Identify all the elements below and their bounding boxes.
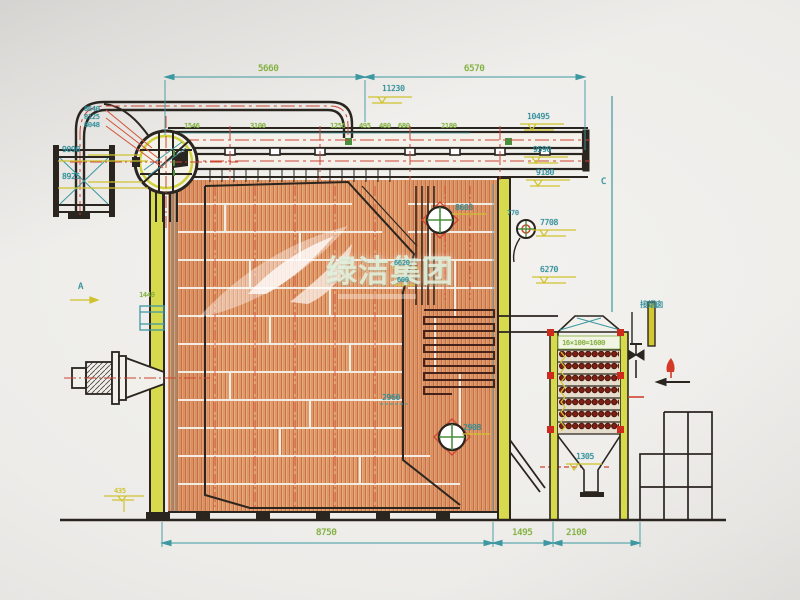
elevation-600: 600 [397, 276, 409, 284]
dim-770: 770 [507, 209, 519, 217]
dim-8603: 8603 [455, 203, 473, 212]
top-headers [162, 128, 589, 182]
elevation-8925: 8925 [62, 172, 80, 181]
left-support-arms [54, 146, 148, 216]
section-marker-c: C [601, 177, 606, 187]
stair-platform [640, 412, 712, 520]
tick-6: 680 [398, 122, 410, 130]
dim-bottom-2100: 2100 [566, 528, 586, 538]
elevation-8640: 8640 [84, 105, 100, 113]
tick-5: 480 [379, 122, 391, 130]
section-marker-a: A [78, 282, 83, 292]
tick-3: 1255 [330, 122, 346, 130]
dim-2960: 2960 [382, 393, 400, 402]
elevation-11230: 11230 [382, 84, 405, 93]
flow-arrow-icon [656, 379, 690, 386]
valve-icon [628, 344, 644, 378]
tick-2: 3100 [250, 122, 266, 130]
flame-marker-icon [667, 358, 675, 378]
tick-7: 2180 [441, 122, 457, 130]
dim-1440: 1440 [139, 291, 155, 299]
elevation-8048: 8048 [84, 121, 100, 129]
flue-connection-note: 接烟囱 [640, 299, 663, 310]
elevation-1305: 1305 [576, 452, 594, 461]
elevation-10495: 10495 [527, 112, 550, 121]
elevation-8125: 8125 [84, 113, 100, 121]
dim-top-right: 6570 [464, 64, 484, 74]
elevation-7708: 7708 [540, 218, 558, 227]
tick-1: 1546 [184, 122, 200, 130]
dim-bottom-1495: 1495 [512, 528, 532, 538]
elevation-6620: 6620 [394, 259, 410, 267]
elevation-435: 435 [114, 487, 126, 495]
dim-bottom-8750: 8750 [316, 528, 336, 538]
elevation-9090: 9090 [62, 145, 80, 154]
watermark-text: 绿洁集团 [326, 246, 454, 291]
instrument-target-3 [514, 220, 535, 262]
photographed-boiler-drawing: 绿洁集团 5660 6570 11230 1546 3100 1255 495 … [0, 0, 800, 600]
elevation-6270: 6270 [540, 265, 558, 274]
tick-4: 495 [359, 122, 371, 130]
dim-2908: 2908 [463, 423, 481, 432]
elevation-9590: 9590 [533, 145, 551, 154]
flue-riser [628, 302, 655, 397]
economizer-coil-spec: 16×100=1600 [562, 339, 605, 347]
dim-top-left: 5660 [258, 64, 278, 74]
elevation-9180: 9180 [536, 168, 554, 177]
